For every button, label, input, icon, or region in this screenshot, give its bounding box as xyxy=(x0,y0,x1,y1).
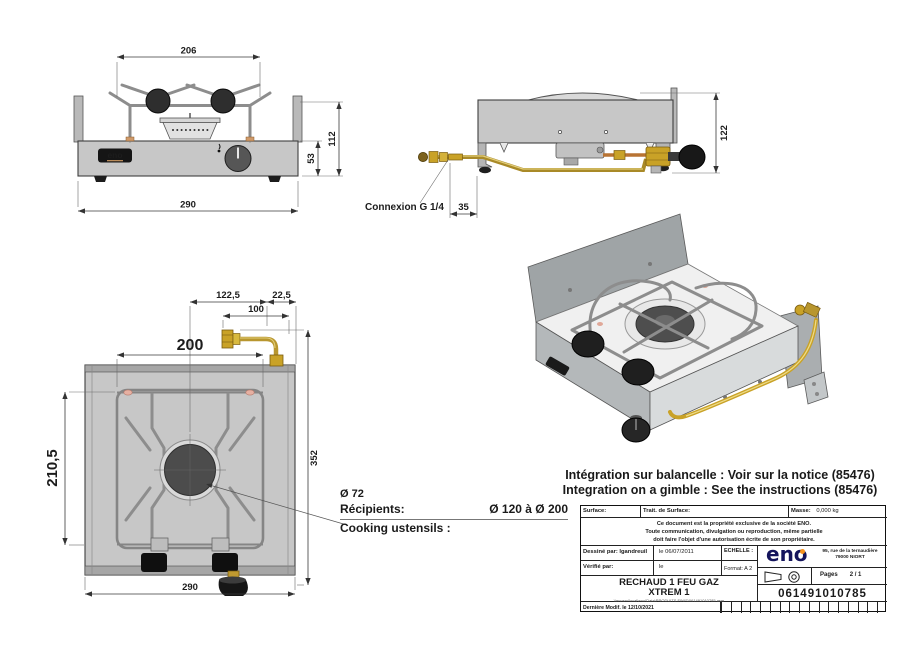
top-dim-100: 100 xyxy=(223,304,289,334)
front-burner xyxy=(160,113,220,139)
top-view: 122,5 22,5 100 200 210,5 352 290 xyxy=(40,278,370,623)
scale-cell: ECHELLE : xyxy=(721,546,757,561)
surface-treatment-cell: Trait. de Surface: xyxy=(641,506,789,518)
front-dim-53: 53 xyxy=(300,141,322,176)
pan-spec-block: Ø 72 Récipients: Ø 120 à Ø 200 Cooking u… xyxy=(340,488,568,535)
top-dim-352-label: 352 xyxy=(309,450,320,466)
drawing-title-cell: RECHAUD 1 FEU GAZ XTREM 1 \\enosrv\local… xyxy=(581,576,757,602)
revision-strip xyxy=(721,602,887,613)
pages-cell: Pages 2 / 1 xyxy=(811,568,887,585)
drawn-date-divider xyxy=(653,546,654,576)
side-connection-label: Connexion G 1/4 xyxy=(365,202,444,213)
side-valve-and-knob xyxy=(646,145,705,173)
revision-cell xyxy=(760,602,770,613)
revision-cell xyxy=(809,602,819,613)
integration-note: Intégration sur balancelle : Voir sur la… xyxy=(548,468,892,498)
revision-cell xyxy=(799,602,809,613)
pages-label: Pages xyxy=(820,572,838,584)
drawn-date: le 06/07/2011 xyxy=(659,549,694,555)
revision-cell xyxy=(838,602,848,613)
side-connection-callout: Connexion G 1/4 xyxy=(365,160,448,213)
address-line-2: 79000 NIORT xyxy=(815,555,885,561)
revision-cell xyxy=(819,602,829,613)
part-number-cell: 061491010785 xyxy=(757,585,887,602)
top-dim-210-5-label: 210,5 xyxy=(44,449,61,487)
integration-note-en: Integration on a gimble : See the instru… xyxy=(548,483,892,498)
cooking-utensils-label: Cooking ustensils : xyxy=(340,521,568,535)
integration-note-fr: Intégration sur balancelle : Voir sur la… xyxy=(548,468,892,483)
front-dim-53-label: 53 xyxy=(306,153,317,164)
revision-cell xyxy=(750,602,760,613)
front-view: eno 206 xyxy=(60,18,380,233)
revision-cell xyxy=(867,602,877,613)
revision-cell xyxy=(770,602,780,613)
property-notice: Ce document est la propriété exclusive d… xyxy=(581,518,887,546)
revision-cell xyxy=(858,602,868,613)
revision-cell xyxy=(848,602,858,613)
recipients-range: Ø 120 à Ø 200 xyxy=(489,502,568,516)
drawn-by-row: Dessiné par: lgandreuil le 06/07/2011 xyxy=(581,546,721,561)
title-block: Surface: Trait. de Surface: Masse: 0,000… xyxy=(580,505,886,612)
last-modified-cell: Dernière Modif. le 12/10/2021 xyxy=(581,602,721,613)
technical-drawing-sheet: { "front_view": { "logo": "eno", "dim_to… xyxy=(0,0,900,655)
revision-cell xyxy=(780,602,790,613)
first-angle-projection-icon xyxy=(762,570,808,583)
revision-cell xyxy=(789,602,799,613)
side-dim-122-label: 122 xyxy=(719,125,730,141)
burner-diameter-label: Ø 72 xyxy=(340,488,568,500)
top-dim-22-5: 22,5 xyxy=(267,290,296,364)
revision-cell xyxy=(877,602,887,613)
top-dim-122-5-label: 122,5 xyxy=(216,290,240,301)
top-dim-290: 290 xyxy=(85,577,295,594)
company-address: 95, rue de la ternaudière 79000 NIORT xyxy=(815,549,885,561)
revision-cell xyxy=(741,602,751,613)
mass-label: Masse: xyxy=(791,508,811,514)
front-grip-left xyxy=(146,89,170,113)
surface-cell: Surface: xyxy=(581,506,641,518)
eno-logo-dot xyxy=(800,549,805,554)
revision-cell xyxy=(721,602,731,613)
drawn-by-label: Dessiné par: lgandreuil xyxy=(583,549,647,555)
notice-line-2: Toute communication, divulgation ou repr… xyxy=(581,528,887,536)
front-dim-290: 290 xyxy=(78,181,298,211)
isometric-view: eno xyxy=(500,212,870,470)
front-grip-right xyxy=(211,89,235,113)
pages-value: 2 / 1 xyxy=(850,572,862,584)
front-eno-badge: eno xyxy=(98,149,132,163)
top-gas-elbow xyxy=(222,330,283,366)
checked-by-label: Vérifié par: xyxy=(583,564,613,570)
front-dim-112-label: 112 xyxy=(327,131,338,146)
checked-by-row: Vérifié par: le xyxy=(581,561,721,576)
top-dim-22-5-label: 22,5 xyxy=(272,290,291,301)
side-dim-35: 35 xyxy=(450,163,477,218)
brand-cell: eno 95, rue de la ternaudière 79000 NIOR… xyxy=(757,546,887,568)
side-regulator xyxy=(556,143,604,165)
drawing-title-line-2: XTREM 1 xyxy=(581,588,757,598)
front-dim-112: 112 xyxy=(300,102,343,176)
recipients-label: Récipients: xyxy=(340,502,405,516)
revision-cell xyxy=(731,602,741,613)
side-gas-connector xyxy=(418,152,462,163)
top-dim-290-label: 290 xyxy=(182,582,198,593)
side-view: 122 35 Connexion G 1/4 xyxy=(360,60,750,230)
top-dim-100-label: 100 xyxy=(248,304,264,315)
front-dim-206-label: 206 xyxy=(181,46,197,57)
notice-line-1: Ce document est la propriété exclusive d… xyxy=(581,520,887,528)
front-dim-290-label: 290 xyxy=(180,200,196,211)
side-control-knob xyxy=(679,145,705,169)
revision-cell xyxy=(828,602,838,613)
eno-logo: eno xyxy=(766,542,808,566)
side-dim-35-label: 35 xyxy=(458,202,469,213)
top-dim-200-label: 200 xyxy=(177,337,204,354)
mass-cell: Masse: 0,000 kg xyxy=(789,506,887,518)
front-eno-logo-text: eno xyxy=(107,150,122,160)
checked-date: le xyxy=(659,564,664,570)
format-cell: Format: A 2 xyxy=(721,561,757,576)
mass-value: 0,000 kg xyxy=(816,508,838,514)
projection-symbol-cell xyxy=(757,568,811,585)
notice-line-3: doit faire l'objet d'une autorisation éc… xyxy=(581,536,887,544)
